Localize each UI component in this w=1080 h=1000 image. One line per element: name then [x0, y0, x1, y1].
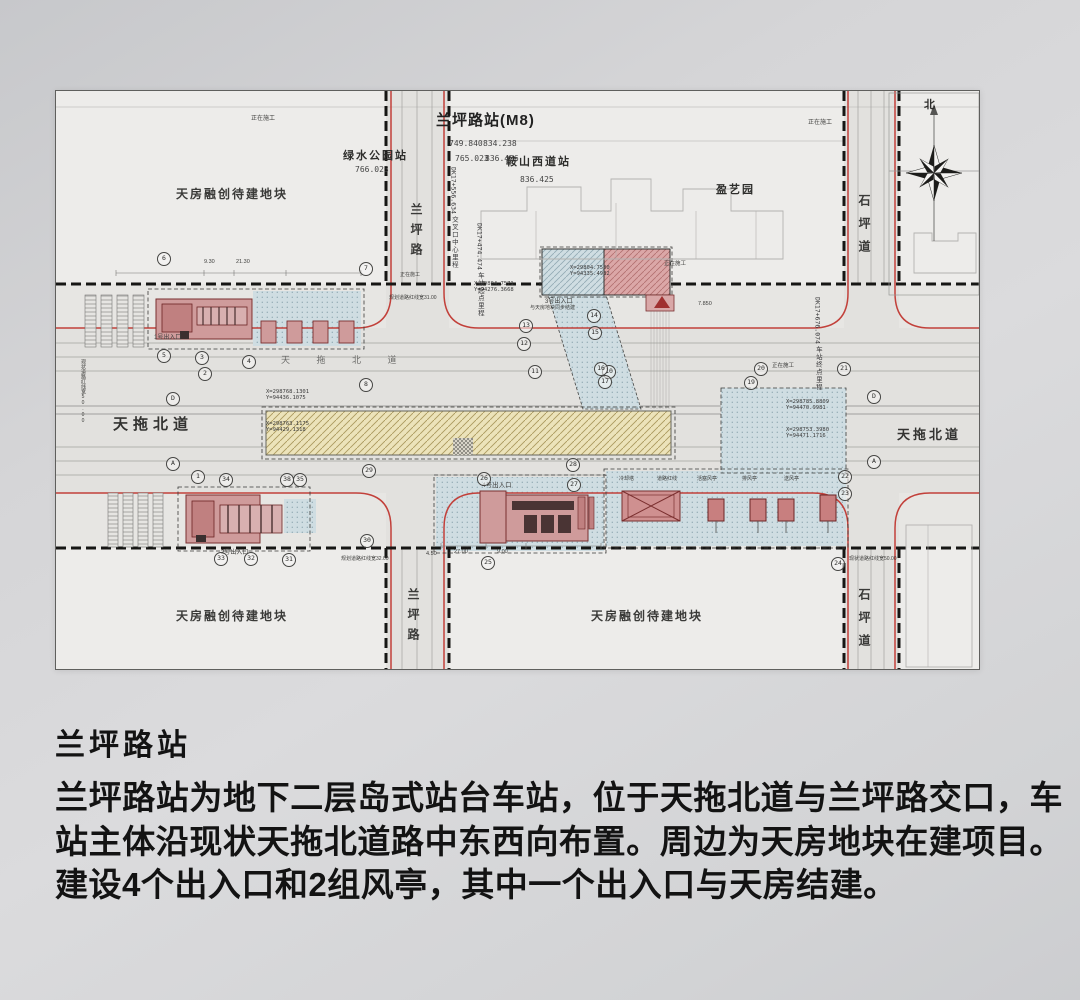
- entrance-4-building: [480, 491, 594, 543]
- hatched-strip: [649, 301, 671, 409]
- station-body: [262, 407, 675, 459]
- caption-heading: 兰坪路站: [55, 720, 1063, 764]
- cooling-tower: [622, 491, 680, 521]
- caption-body: 兰坪路站为地下二层岛式站台车站，位于天拖北道与兰坪路交口，车站主体沿现状天拖北道…: [55, 776, 1063, 907]
- site-plan: 兰坪路站(M8) 绿水公园站 766.023 鞍山西道站 836.425 749…: [55, 90, 980, 670]
- site-plan-linework: [56, 91, 979, 669]
- caption-block: 兰坪路站 兰坪路站为地下二层岛式站台车站，位于天拖北道与兰坪路交口，车站主体沿现…: [55, 720, 1063, 907]
- station-shaft: [453, 438, 473, 455]
- photographed-document-page: { "colors":{"accent_red":"#c0392b","stat…: [0, 0, 1080, 1000]
